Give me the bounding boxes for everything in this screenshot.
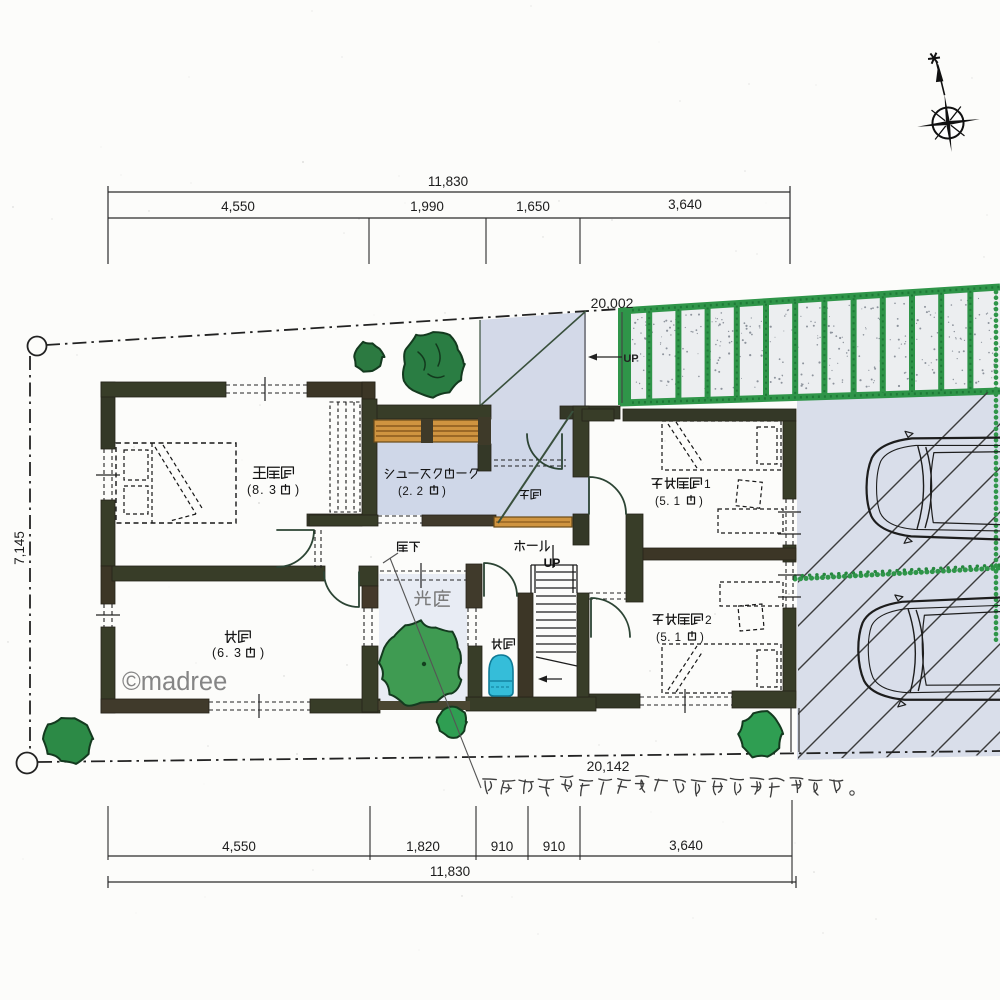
svg-text:2: 2 [705, 613, 712, 627]
svg-text:UP: UP [544, 556, 561, 570]
svg-text:20,002: 20,002 [591, 295, 634, 311]
svg-text:1: 1 [704, 477, 711, 491]
svg-text:4,550: 4,550 [222, 839, 256, 854]
svg-text:910: 910 [543, 839, 566, 854]
svg-text:): ) [700, 632, 704, 644]
svg-text:3,640: 3,640 [669, 838, 703, 853]
svg-text:(2. 2: (2. 2 [398, 486, 424, 498]
svg-text:(6. 3: (6. 3 [212, 646, 242, 660]
svg-text:3,640: 3,640 [668, 197, 702, 212]
svg-text:4,550: 4,550 [221, 199, 255, 214]
svg-text:11,830: 11,830 [428, 174, 468, 189]
svg-text:): ) [699, 496, 703, 508]
svg-text:7,145: 7,145 [12, 531, 27, 565]
svg-text:1,650: 1,650 [516, 199, 550, 214]
svg-text:11,830: 11,830 [430, 864, 470, 879]
svg-text:(5. 1: (5. 1 [656, 632, 682, 644]
svg-text:(8. 3: (8. 3 [247, 483, 277, 497]
svg-text:): ) [260, 646, 264, 660]
svg-text:910: 910 [491, 839, 514, 854]
svg-text:): ) [295, 483, 299, 497]
svg-text:1,990: 1,990 [410, 199, 444, 214]
svg-text:©madree: ©madree [122, 668, 227, 696]
svg-text:1,820: 1,820 [406, 839, 440, 854]
svg-text:20,142: 20,142 [587, 758, 630, 774]
svg-text:): ) [442, 486, 446, 498]
svg-text:UP: UP [623, 353, 638, 365]
svg-text:(5. 1: (5. 1 [655, 496, 681, 508]
